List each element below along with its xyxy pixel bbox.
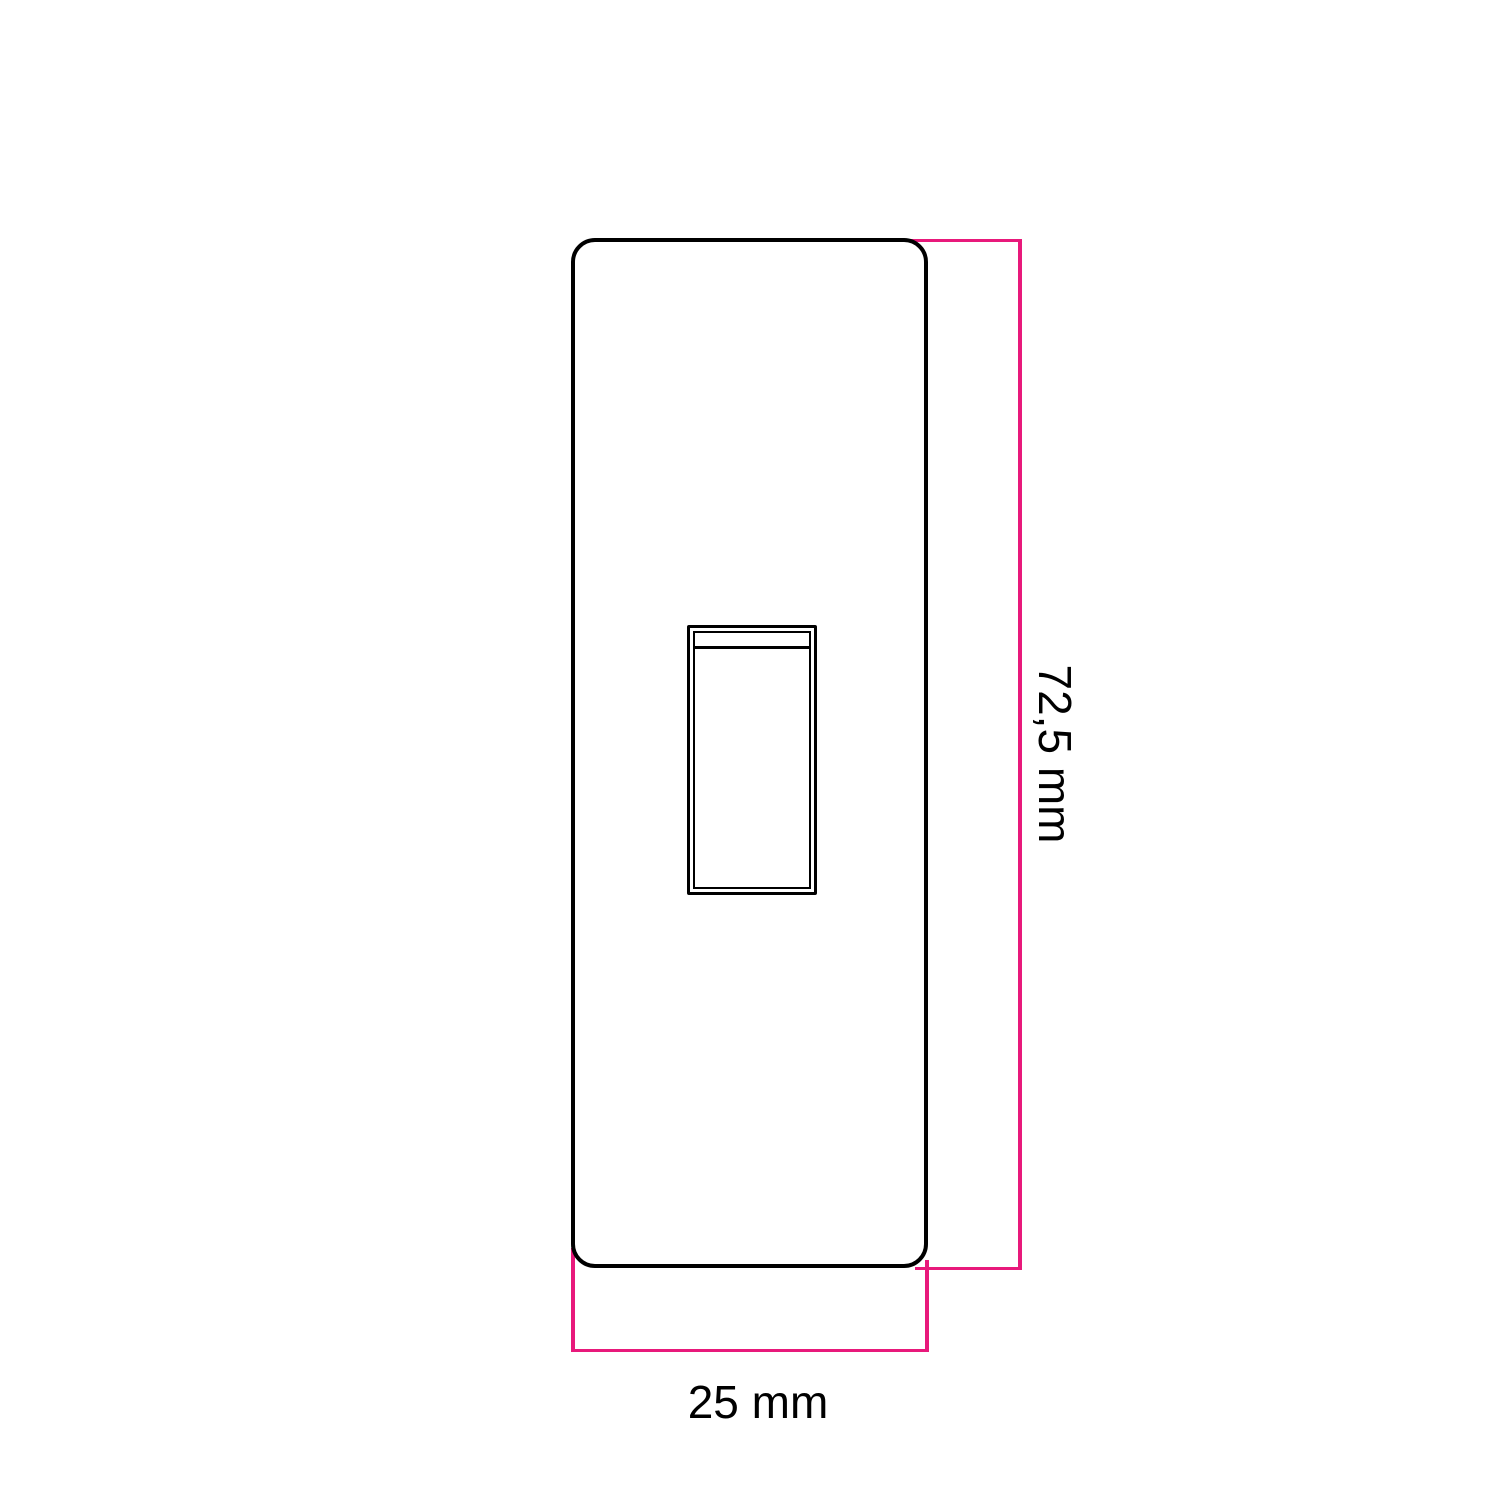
width-dimension-extension-left <box>571 1248 575 1352</box>
technical-drawing-canvas: 72,5 mm 25 mm <box>0 0 1500 1500</box>
rocker-top-edge-line <box>695 646 809 649</box>
width-dimension-line <box>571 1349 929 1352</box>
width-dimension-label: 25 mm <box>628 1378 888 1426</box>
rocker-switch-button-outline <box>693 631 811 889</box>
height-dimension-label: 72,5 mm <box>1031 624 1079 884</box>
height-dimension-line <box>1018 239 1022 1270</box>
height-dimension-extension-bottom <box>915 1267 1022 1270</box>
height-dimension-extension-top <box>910 239 1022 242</box>
width-dimension-extension-right <box>925 1260 929 1352</box>
